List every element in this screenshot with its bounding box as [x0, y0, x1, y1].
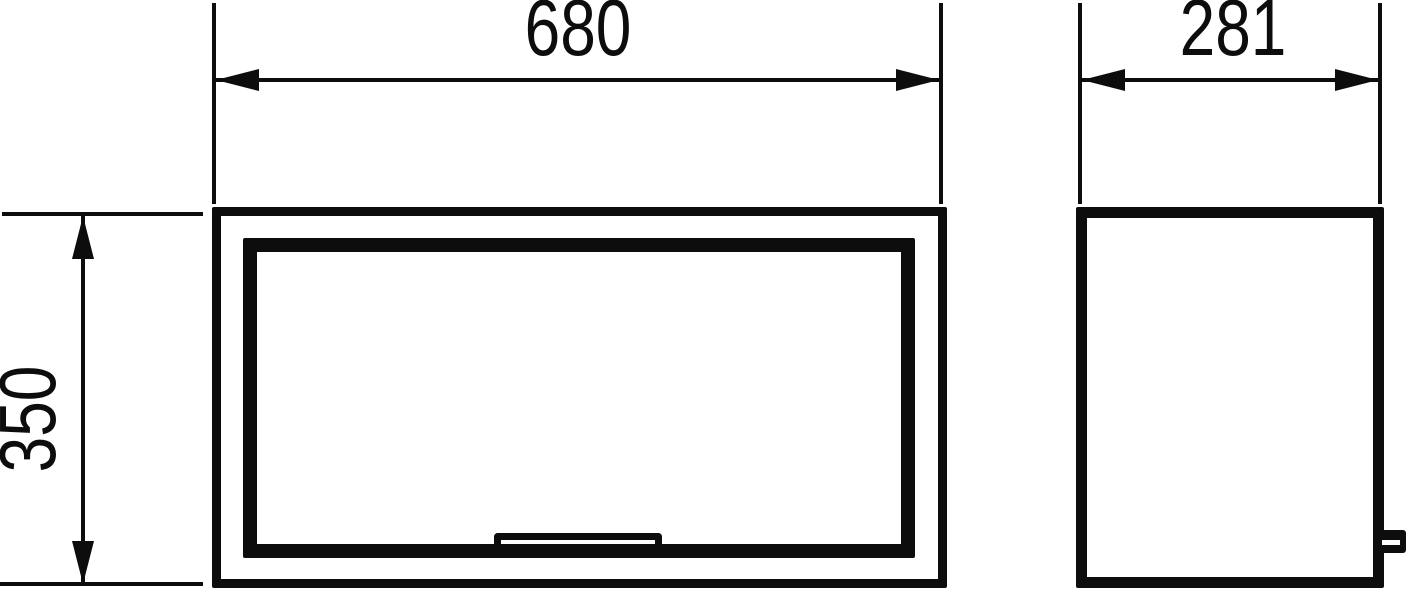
arrowhead-right-icon — [1335, 69, 1378, 91]
dim-281-dimension-line — [1082, 78, 1378, 82]
technical-drawing-canvas: 680 281 350 — [0, 0, 1410, 591]
dim-281-value: 281 — [1153, 0, 1313, 64]
arrowhead-left-icon — [1082, 69, 1125, 91]
dim-680-extension-line-right — [939, 3, 943, 204]
dim-350-value: 350 — [0, 339, 64, 499]
arrowhead-right-icon — [896, 69, 939, 91]
front-view-handle — [494, 533, 662, 558]
dim-350-extension-line-top — [2, 212, 203, 216]
side-view-body — [1076, 207, 1384, 588]
arrowhead-down-icon — [72, 541, 94, 584]
dim-350-extension-line-bottom — [0, 582, 203, 586]
arrowhead-left-icon — [216, 69, 259, 91]
side-view-knob-slot — [1382, 540, 1400, 545]
dim-680-extension-line-left — [212, 3, 216, 204]
dim-281-extension-line-right — [1378, 3, 1382, 204]
dim-350-dimension-line — [81, 216, 85, 584]
dim-680-value: 680 — [498, 0, 658, 64]
arrowhead-up-icon — [72, 216, 94, 259]
dim-680-dimension-line — [216, 78, 939, 82]
front-view-door-frame — [243, 238, 915, 558]
dim-281-extension-line-left — [1078, 3, 1082, 204]
